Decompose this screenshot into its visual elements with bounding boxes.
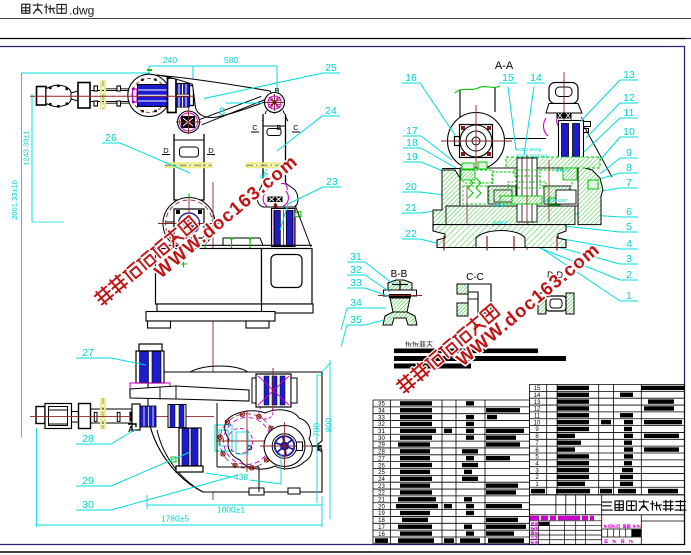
svg-text:30206 GB/T: 30206 GB/T — [544, 198, 569, 203]
svg-text:C: C — [293, 123, 299, 132]
svg-text:28: 28 — [82, 433, 94, 445]
svg-text:12: 12 — [534, 407, 541, 413]
svg-text:32: 32 — [378, 422, 385, 428]
svg-text:21: 21 — [405, 202, 417, 214]
svg-text:23: 23 — [378, 484, 385, 490]
svg-text:700: 700 — [312, 423, 322, 437]
svg-text:14: 14 — [530, 72, 542, 84]
svg-text:Ø35k6: Ø35k6 — [493, 203, 507, 208]
svg-text:14: 14 — [534, 393, 541, 399]
svg-text:21: 21 — [378, 498, 385, 504]
svg-text:C-C: C-C — [466, 272, 484, 283]
svg-text:5: 5 — [626, 221, 632, 233]
svg-text:9: 9 — [626, 147, 632, 159]
svg-text:1: 1 — [626, 290, 632, 302]
svg-text:33: 33 — [350, 277, 362, 289]
svg-text:7: 7 — [626, 177, 632, 189]
svg-text:32: 32 — [350, 264, 362, 276]
svg-text:25: 25 — [325, 62, 337, 74]
svg-text:34: 34 — [378, 408, 385, 414]
svg-text:C: C — [252, 123, 258, 132]
svg-text:11: 11 — [624, 107, 635, 119]
svg-text:2001.33±10: 2001.33±10 — [10, 180, 19, 220]
svg-text:B: B — [276, 123, 281, 132]
svg-text:29: 29 — [378, 443, 385, 449]
svg-text:30207 GB/T297: 30207 GB/T297 — [516, 154, 548, 159]
svg-text:A-A: A-A — [495, 60, 514, 72]
svg-text:1780±5: 1780±5 — [161, 514, 190, 524]
svg-text:27: 27 — [82, 347, 94, 359]
svg-text:240: 240 — [163, 55, 177, 65]
svg-text:M30x2-6H/6g: M30x2-6H/6g — [516, 147, 542, 152]
svg-text:26: 26 — [378, 463, 385, 469]
svg-text:20: 20 — [378, 504, 385, 510]
svg-text:8: 8 — [219, 106, 225, 118]
svg-text:438: 438 — [234, 472, 248, 482]
svg-text:22: 22 — [405, 228, 417, 240]
svg-text:34: 34 — [350, 297, 362, 309]
svg-text:6: 6 — [626, 206, 632, 218]
svg-text:28: 28 — [378, 450, 385, 456]
svg-text:22: 22 — [378, 491, 385, 497]
svg-text:4: 4 — [626, 238, 632, 250]
svg-text:B-B: B-B — [391, 269, 408, 280]
svg-text:2: 2 — [626, 269, 632, 281]
svg-text:10: 10 — [623, 126, 635, 138]
svg-text:580: 580 — [224, 55, 238, 65]
svg-text:19: 19 — [406, 151, 418, 163]
svg-text:35: 35 — [378, 402, 385, 408]
svg-text:27: 27 — [378, 456, 385, 462]
svg-text:23: 23 — [326, 176, 338, 188]
svg-text:1243.39±1: 1243.39±1 — [22, 130, 31, 165]
svg-text:11: 11 — [534, 414, 541, 420]
svg-text:30: 30 — [378, 436, 385, 442]
svg-text:18: 18 — [378, 518, 385, 524]
svg-text:31: 31 — [378, 429, 385, 435]
svg-text:31: 31 — [350, 251, 362, 263]
svg-text:25: 25 — [378, 470, 385, 476]
svg-text:29: 29 — [82, 475, 94, 487]
svg-text:18: 18 — [406, 137, 418, 149]
svg-text:1000±1: 1000±1 — [217, 505, 246, 515]
svg-text:20: 20 — [405, 181, 417, 193]
svg-text:Ø62H8: Ø62H8 — [556, 168, 571, 173]
svg-text:35: 35 — [350, 314, 362, 326]
svg-text:16: 16 — [405, 72, 417, 84]
svg-text:800: 800 — [324, 418, 334, 432]
svg-text:15: 15 — [502, 72, 514, 84]
svg-text:26: 26 — [105, 132, 117, 144]
svg-text:.dwg: .dwg — [69, 4, 94, 18]
svg-text:24: 24 — [378, 477, 385, 483]
svg-text:33: 33 — [378, 415, 385, 421]
svg-text:13: 13 — [534, 400, 541, 406]
svg-text:8: 8 — [626, 162, 632, 174]
svg-text:15: 15 — [534, 386, 541, 392]
svg-text:30: 30 — [82, 499, 94, 511]
svg-text:19: 19 — [378, 511, 385, 517]
svg-text:13: 13 — [623, 69, 635, 81]
svg-text:17: 17 — [406, 125, 418, 137]
svg-text:B: B — [274, 86, 279, 95]
svg-text:10: 10 — [534, 420, 541, 426]
svg-text:17: 17 — [378, 525, 385, 531]
svg-text:D: D — [163, 146, 169, 155]
svg-text:3: 3 — [626, 253, 632, 265]
svg-text:12: 12 — [623, 92, 635, 104]
svg-text:D: D — [208, 146, 214, 155]
svg-text:24: 24 — [325, 105, 337, 117]
svg-text:16: 16 — [378, 532, 385, 538]
